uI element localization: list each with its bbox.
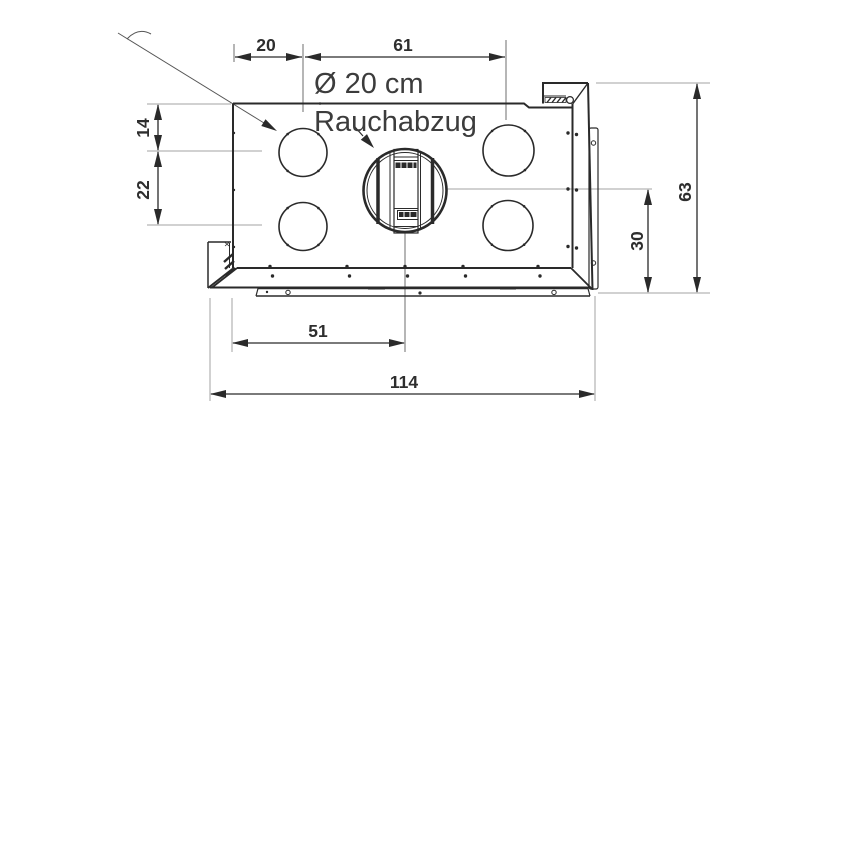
dim-label-63: 63 <box>675 182 695 202</box>
burner-hole-bottom-left <box>279 203 327 251</box>
dim-label-30: 30 <box>627 231 647 251</box>
outlet-diameter-label: Ø 20 cm <box>314 68 424 100</box>
smoke-hood-dimension-drawing: Ø 20 cm Rauchabzug 20 61 51 114 14 22 63… <box>0 0 850 850</box>
technical-drawing-page: Ø 20 cm Rauchabzug 20 61 51 114 14 22 63… <box>0 0 850 850</box>
dim-label-22: 22 <box>133 180 153 200</box>
dim-label-61: 61 <box>393 35 413 55</box>
base-strip <box>256 289 590 297</box>
flange-bolt-icon <box>567 97 574 104</box>
dim-label-14: 14 <box>133 118 153 138</box>
cutoff-balloon-arc <box>127 31 151 39</box>
leader-line-group <box>118 31 277 131</box>
smoke-outlet <box>364 149 447 233</box>
leader-arrowhead-icon <box>261 119 277 131</box>
dim-label-20: 20 <box>256 35 276 55</box>
dim-label-51: 51 <box>308 321 328 341</box>
burner-hole-top-right <box>483 125 534 176</box>
outlet-name-label: Rauchabzug <box>314 106 477 138</box>
burner-hole-bottom-right <box>483 201 533 251</box>
leader-diagonal <box>118 33 264 123</box>
dim-label-114: 114 <box>390 372 418 392</box>
